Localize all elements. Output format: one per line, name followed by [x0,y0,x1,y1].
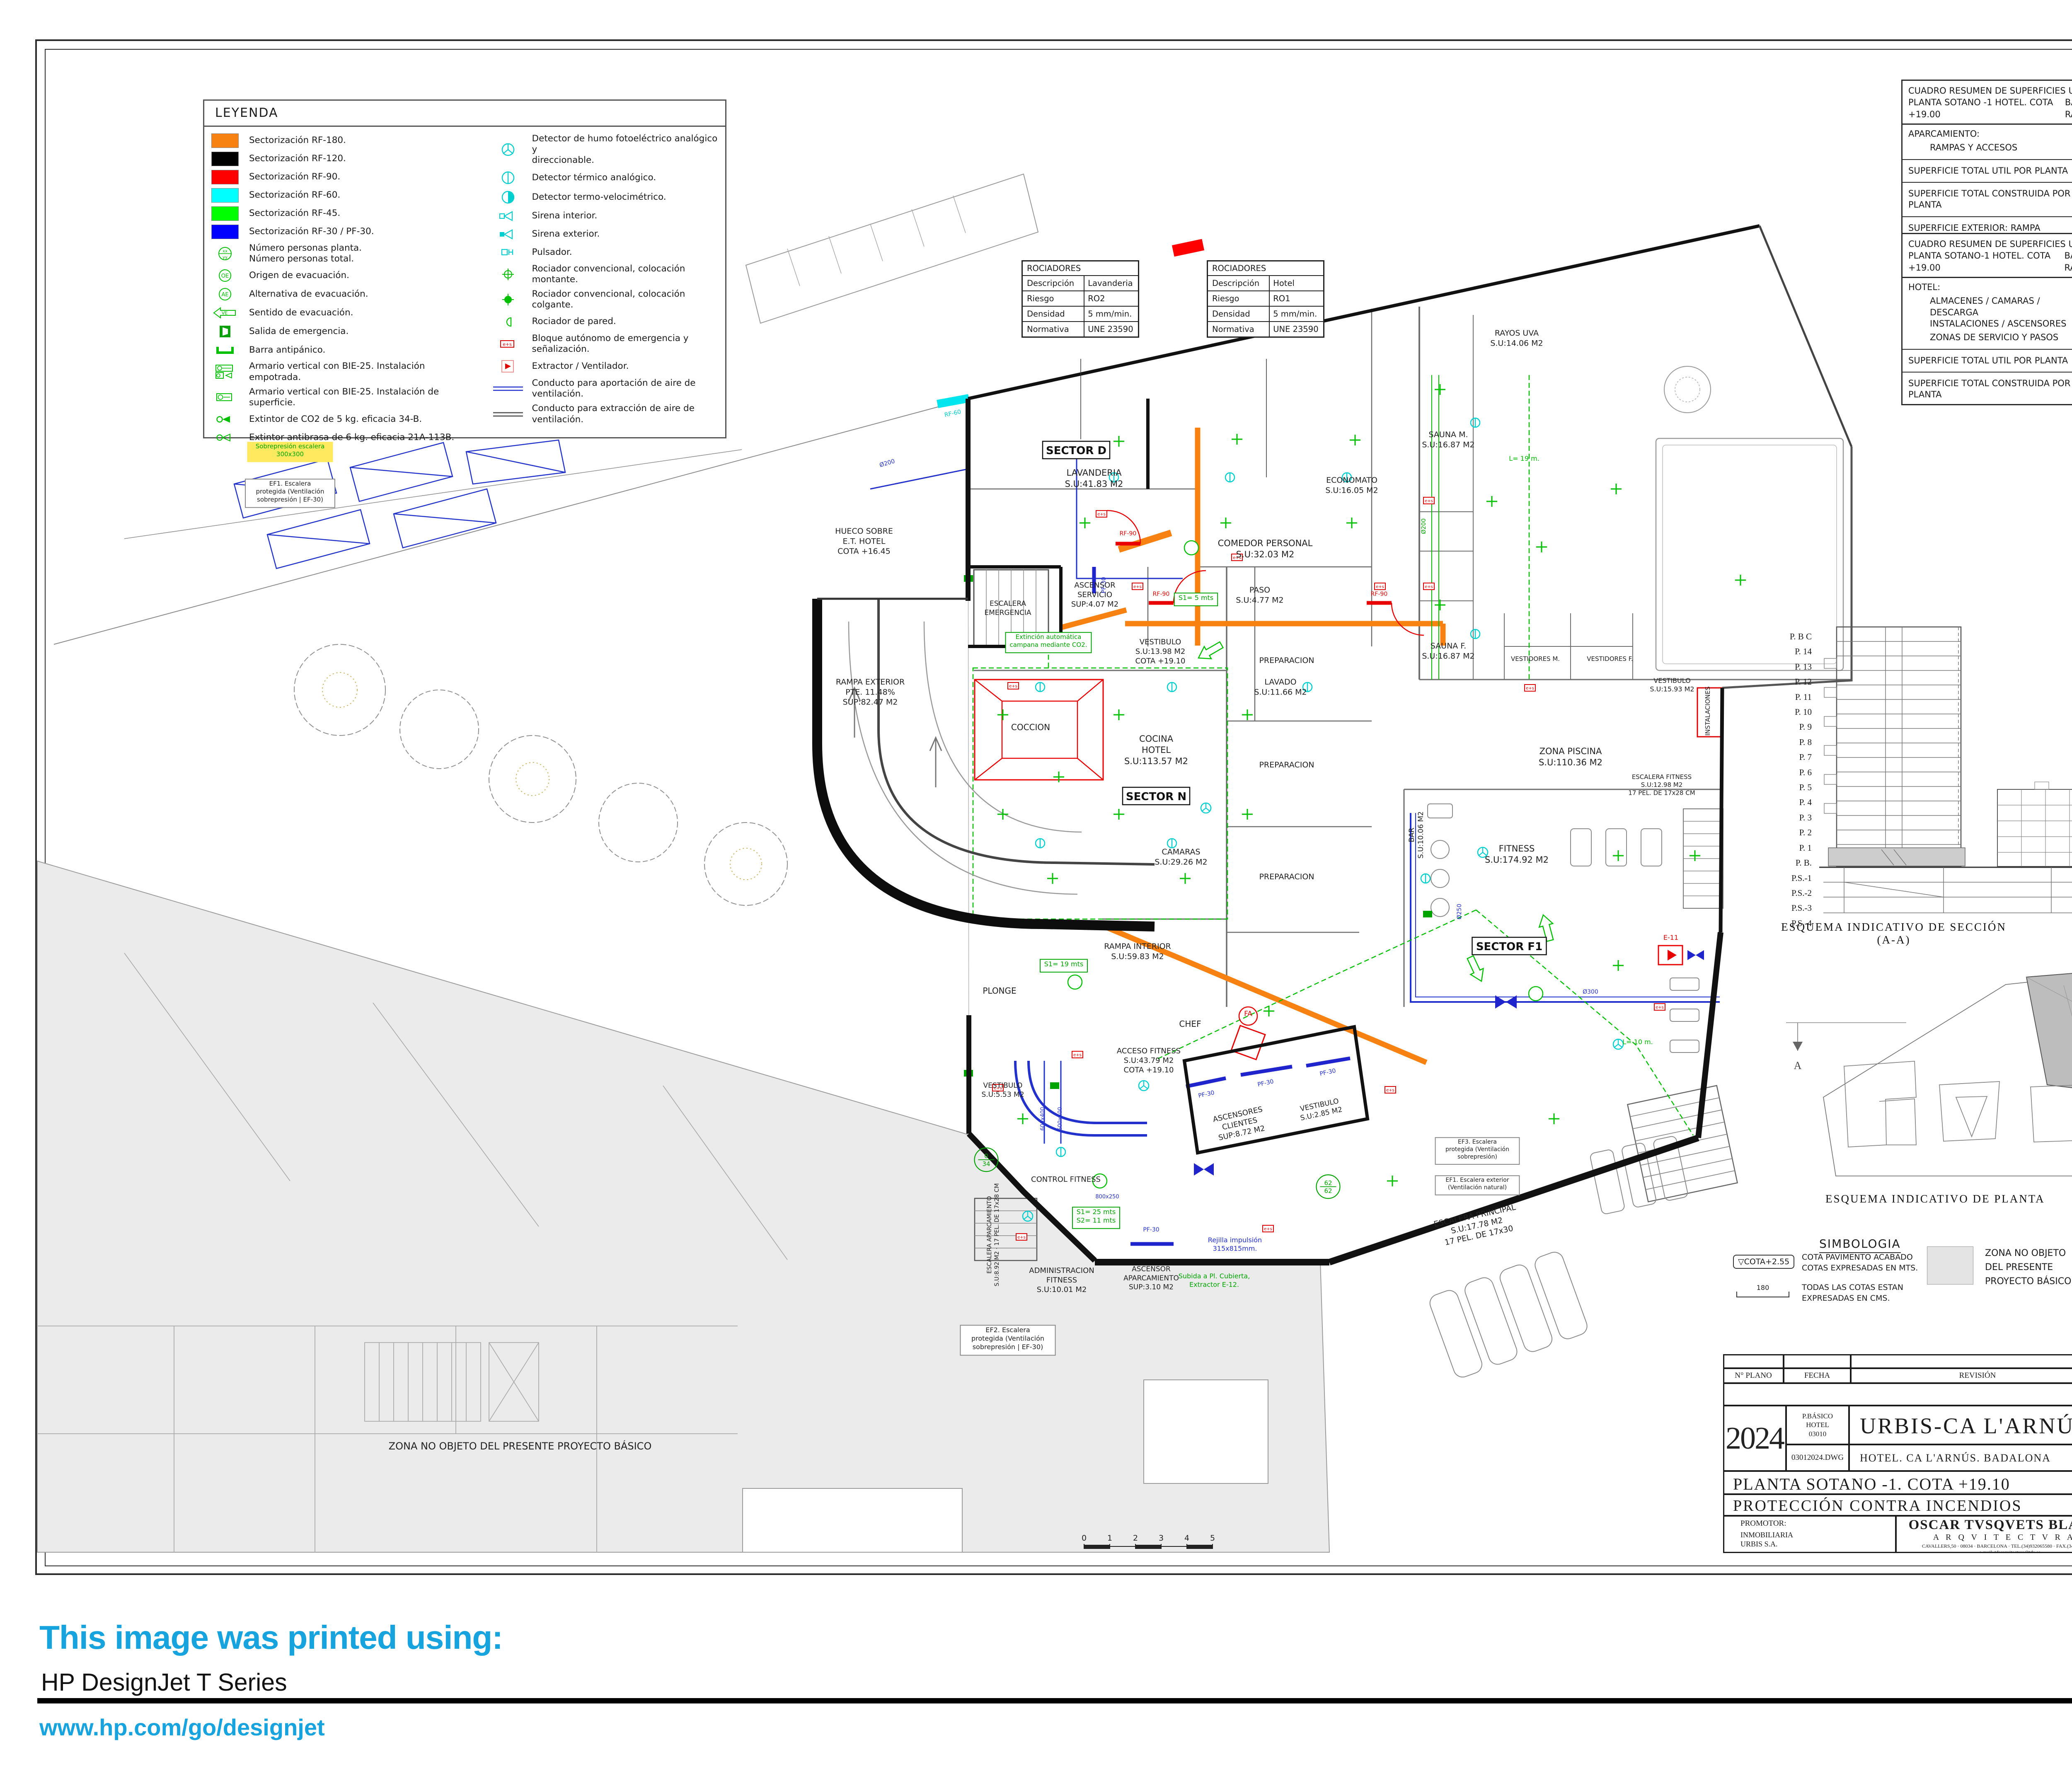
ve-icon: VE [208,305,242,320]
svg-text:SECTOR D: SECTOR D [1046,445,1106,457]
oe-icon: OE [208,268,242,283]
floor-label: P. 7 [1760,750,1812,765]
e+s-icon: e+s [491,337,525,351]
tb-year: 2024 [1723,1406,1786,1471]
sprinkler-table-row: DescripciónLavanderia [1023,276,1138,291]
legend-item: VESentido de evacuación. [208,305,491,320]
legend-swatch-#FF0000 [208,170,242,184]
plan-label: PREPARACION [1259,872,1314,881]
plan-label: RF-90 [1371,591,1388,598]
tb-empty-1 [1723,1354,1784,1368]
floor-label: P.S.-3 [1760,900,1812,915]
svg-text:e+s: e+s [503,341,512,347]
svg-text:VESTIBULOS.U:13.98 M2COTA +19.: VESTIBULOS.U:13.98 M2COTA +19.10 [1135,638,1186,665]
legend-swatch-#F78212 [208,133,242,148]
svg-text:SECTOR N: SECTOR N [1126,791,1186,803]
promotor-label: PROMOTOR: [1740,1519,1895,1528]
plan-label: Ø200 [879,458,896,469]
summary-group-heading: APARCAMIENTO: [1903,127,2072,141]
svg-text:e+s: e+s [1386,1088,1394,1093]
svg-text:S1= 19 mts: S1= 19 mts [1044,960,1083,968]
floor-label: P. B. [1760,855,1812,870]
svg-text:ZONA NO OBJETO DEL PRESENTE PR: ZONA NO OBJETO DEL PRESENTE PROYECTO BÁS… [389,1440,652,1452]
svg-text:0: 0 [1082,1534,1087,1543]
svg-text:e+s: e+s [1073,1053,1082,1057]
svg-text:S1= 25 mtsS2= 11 mts: S1= 25 mtsS2= 11 mts [1077,1208,1116,1224]
svg-text:CHEF: CHEF [1179,1019,1201,1029]
svg-text:FA: FA [1244,1010,1252,1018]
svg-text:e+s: e+s [1376,585,1384,589]
ae-icon: AE [208,287,242,302]
summary-row: ALMACENES / CAMARAS / DESCARGAINSTALACIO… [1903,294,2072,331]
cota-symbol-chip: ▽COTA+2.55 [1733,1255,1794,1269]
svg-text:PLONGE: PLONGE [983,986,1016,996]
legend-item-label: Salida de emergencia. [249,326,349,337]
legend-title: LEYENDA [204,101,725,127]
tb-project-subtitle: HOTEL. CA L'ARNÚS. BADALONA [1849,1444,2072,1471]
plan-label: E-11 [1663,934,1678,941]
plan-label: 600x400 [1040,1107,1046,1130]
legend-item-label: Rociador convencional, colocación montan… [532,264,722,285]
svg-text:5: 5 [1210,1534,1215,1543]
cond-extr-icon [491,409,525,419]
footer-url: www.hp.com/go/designjet [39,1714,325,1741]
cota-symbol-text: COTA PAVIMENTO ACABADO COTAS EXPRESADAS … [1802,1252,1918,1273]
dimension-symbol: 180 [1736,1284,1789,1297]
trees [294,644,787,905]
legend-item-label: Número personas planta. Número personas … [249,243,362,264]
plan-label: EF3. Escaleraprotegida (Ventilaciónsobre… [1435,1137,1520,1164]
svg-text:PF-30: PF-30 [1101,577,1107,593]
legend-swatch-#000000 [208,152,242,166]
zona-text: ZONA NO OBJETO DEL PRESENTE PROYECTO BÁS… [1985,1246,2071,1289]
sector-badge: SECTOR N [1123,787,1190,805]
legend-item: Pulsador. [491,245,722,260]
legend-item-label: Sirena interior. [532,210,598,221]
svg-text:yy: yy [223,255,228,260]
legend-item: AEAlternativa de evacuación. [208,287,491,302]
plan-label: EF1. Escaleraprotegida (Ventilaciónsobre… [245,479,335,508]
plan-label: 800x250 [1095,1194,1119,1200]
floor-label: P.S.-1 [1760,871,1812,886]
legend-item-label: Origen de evacuación. [249,270,349,281]
legend-item: Conducto para extracción de aire de vent… [491,403,722,425]
legend-item-label: Armario vertical con BIE-25. Instalación… [249,361,425,382]
legend-item-label: Detector térmico analógico. [532,172,656,183]
svg-text:VESTIDORES F.: VESTIDORES F. [1587,655,1633,663]
summary-table-hotel: CUADRO RESUMEN DE SUPERFICIES UTILESPLAN… [1901,233,2072,405]
thermal-icon [491,170,525,186]
thermo-icon [491,189,525,205]
tb-revision-row [1723,1383,2072,1406]
summary-total-row: SUPERFICIE TOTAL UTIL POR PLANTA59.83 M2 [1903,164,2072,178]
plan-label: PF-30 [1143,1227,1159,1233]
section-cut-marker: A [1794,1060,1802,1072]
legend-item: OEOrigen de evacuación. [208,268,491,283]
plan-label: PREPARACION [1259,656,1314,665]
section-floor-labels: P. B CP. 14P. 13P. 12P. 11P. 10P. 9P. 8P… [1760,629,1812,931]
svg-text:RF-90: RF-90 [1120,530,1137,537]
svg-text:ESCALERAEMERGENCIA: ESCALERAEMERGENCIA [984,600,1031,617]
svg-text:VESTIBULOS.U:5.53 M2: VESTIBULOS.U:5.53 M2 [981,1082,1024,1099]
floor-label: P. 13 [1760,659,1812,674]
footer-product-name: HP DesignJet T Series [41,1668,287,1696]
legend-item-label: Sirena exterior. [532,229,600,240]
summary-table-title: CUADRO RESUMEN DE SUPERFICIES UTILESPLAN… [1903,234,2072,278]
svg-text:EF1. Escalera exterior(Ventila: EF1. Escalera exterior(Ventilación natur… [1445,1177,1509,1191]
svg-text:PREPARACION: PREPARACION [1259,760,1314,769]
svg-text:RF-90: RF-90 [1371,591,1388,598]
svg-text:1: 1 [1107,1534,1112,1543]
ext-co2-icon [208,412,242,426]
floor-label: P. 9 [1760,719,1812,734]
legend-item-label: Armario vertical con BIE-25. Instalación… [249,387,439,408]
svg-text:ACCESO FITNESSS.U:43.79 M2COTA: ACCESO FITNESSS.U:43.79 M2COTA +19.10 [1117,1047,1181,1074]
plan-label: Ø200 [1421,518,1427,534]
svg-text:INSTALACIONES: INSTALACIONES [1704,686,1711,736]
tb-empty-3 [1851,1354,2072,1368]
summary-total-row: SUPERFICIE TOTAL CONSTRUIDA POR PLANTA33… [1903,377,2072,402]
tb-empty-2 [1784,1354,1851,1368]
simbologia-title: SIMBOLOGIA [1819,1237,1901,1253]
floor-label: P.S.-2 [1760,886,1812,900]
extractor-icon [491,358,525,374]
svg-text:SECTOR F1: SECTOR F1 [1476,941,1542,953]
footer-headline: This image was printed using: [39,1619,503,1657]
tb-header-plano: N° PLANO [1723,1368,1784,1383]
svg-text:600x400: 600x400 [1040,1107,1046,1130]
svg-text:e+s: e+s [1133,585,1142,589]
sprinkler-table-row: RiesgoRO2 [1023,291,1138,307]
svg-text:ESCALERA APARCAMIENTOS.U:8.92: ESCALERA APARCAMIENTOS.U:8.92 M2 · 17 PE… [986,1183,1000,1287]
legend-item-label: Detector termo-velocimétrico. [532,192,666,203]
legend-item-label: Rociador convencional, colocación colgan… [532,289,722,310]
sprinkler-table-row: DescripciónHotel [1208,276,1323,291]
floor-label: P. 8 [1760,735,1812,750]
floor-label: P. 6 [1760,765,1812,780]
dimension-bar [1736,1292,1789,1297]
svg-text:Ø200: Ø200 [1421,518,1427,534]
summary-table-title: CUADRO RESUMEN DE SUPERFICIES UTILESPLAN… [1903,81,2072,125]
floor-label: P. 1 [1760,840,1812,855]
zona-gray-swatch [1927,1246,1973,1285]
footer-divider [37,1698,2072,1703]
legend-item: Rociador convencional, colocación colgan… [491,289,722,310]
summary-total-row: SUPERFICIE TOTAL CONSTRUIDA POR PLANTA97… [1903,187,2072,212]
svg-text:e+s: e+s [1656,1005,1664,1010]
plan-label: ACCESO FITNESSS.U:43.79 M2COTA +19.10 [1117,1047,1181,1074]
sprinkler-table-row: Densidad5 mm/min. [1208,307,1323,322]
legend-item: Sectorización RF-60. [208,188,491,203]
smoke-icon [491,142,525,157]
svg-text:e+s: e+s [1017,1235,1026,1240]
bie-emp-icon [208,364,242,380]
legend-item-label: Barra antipánico. [249,345,325,356]
floor-label: P. 12 [1760,674,1812,689]
svg-text:OE: OE [221,273,229,279]
legend-item-label: Conducto para aportación de aire de vent… [532,378,696,399]
legend-item: Detector térmico analógico. [491,170,722,186]
plan-label: INSTALACIONES [1704,686,1711,736]
legend-item: Armario vertical con BIE-25. Instalación… [208,387,491,408]
svg-text:e+s: e+s [1009,684,1017,689]
plan-label: ESCALERA APARCAMIENTOS.U:8.92 M2 · 17 PE… [986,1183,1000,1287]
pulsador-icon [491,245,525,259]
svg-text:600x400: 600x400 [1057,1107,1063,1130]
plan-label: VESTIBULOS.U:13.98 M2COTA +19.10 [1135,638,1186,665]
svg-text:xx: xx [223,249,228,254]
plan-label: COCCION [1011,722,1050,732]
sprinkler-table-hotel: ROCIADORESDescripciónHotelRiesgoRO1Densi… [1207,260,1324,338]
persons-icon: xxyy [208,246,242,261]
svg-text:4: 4 [1184,1534,1189,1543]
plan-label: ASCENSORSERVICIOSUP:4.07 M2 [1071,581,1118,609]
legend-item: Sectorización RF-180. [208,133,491,148]
legend-item-label: Sectorización RF-60. [249,190,340,201]
plan-label: HUECO SOBREE.T. HOTELCOTA +16.45 [835,527,893,556]
legend-item: Salida de emergencia. [208,324,491,339]
tb-studio: OSCAR TVSQVETS BLANCA A R Q V I T E C T … [1896,1516,2072,1553]
plan-label: S1= 19 mts [1040,959,1087,972]
svg-text:Rejilla impulsión315x815mm.: Rejilla impulsión315x815mm. [1208,1236,1262,1252]
plan-label: VESTIBULOS.U:15.93 M2 [1650,677,1694,693]
plan-label: FA [1244,1010,1252,1018]
plan-label: RF-60 [944,409,962,419]
svg-text:RF-90: RF-90 [1153,591,1170,598]
legend-item-label: Bloque autónomo de emergencia y señaliza… [532,333,722,355]
roc-pared-icon [491,315,525,329]
svg-text:VE: VE [222,310,228,316]
plan-label: L= 10 m. [1622,1038,1653,1046]
tb-drawing-name: PROTECCIÓN CONTRA INCENDIOS [1723,1494,2072,1516]
plan-label: VESTIBULOS.U:5.53 M2 [981,1082,1024,1099]
plan-label: PLONGE [983,986,1016,996]
plan-label: RF-90 [1153,591,1170,598]
plan-schema-caption: ESQUEMA INDICATIVO DE PLANTA [1825,1193,2045,1205]
plan-label: VESTIDORES F. [1587,655,1633,663]
floor-label: P. 2 [1760,825,1812,840]
legend-item: Armario vertical con BIE-25. Instalación… [208,361,491,382]
plan-label: EF2. Escaleraprotegida (Ventilaciónsobre… [960,1325,1055,1355]
section-schema-caption: ESQUEMA INDICATIVO DE SECCIÓN (A-A) [1778,921,2010,946]
svg-text:PREPARACION: PREPARACION [1259,872,1314,881]
plan-label: ESCALERAEMERGENCIA [984,600,1031,617]
plan-label: S1= 25 mtsS2= 11 mts [1072,1207,1120,1229]
legend-item: Sectorización RF-90. [208,170,491,184]
floor-label: P. 11 [1760,690,1812,704]
svg-text:e+s: e+s [1425,499,1433,503]
legend-item: xxyyNúmero personas planta. Número perso… [208,243,491,264]
tb-project-title: URBIS-CA L'ARNÚS [1849,1406,2072,1444]
svg-text:Extinción automáticacampana me: Extinción automáticacampana mediante CO2… [1010,633,1087,648]
plan-label: ZONA NO OBJETO DEL PRESENTE PROYECTO BÁS… [389,1440,652,1452]
svg-text:COCCION: COCCION [1011,722,1050,732]
legend-item: Rociador de pared. [491,315,722,329]
svg-text:RAMPA EXTERIORPTE. 11.48%SUP:8: RAMPA EXTERIORPTE. 11.48%SUP:82.47 M2 [836,677,905,707]
floor-label: P. 14 [1760,644,1812,659]
studio-address: CAVALLERS,50 · 08034 · BARCELONA · TEL.(… [1897,1543,2072,1549]
svg-text:e+s: e+s [1097,512,1106,517]
bie-sup-icon [208,390,242,404]
svg-text:6262: 6262 [1324,1179,1332,1195]
svg-text:HUECO SOBREE.T. HOTELCOTA +16.: HUECO SOBREE.T. HOTELCOTA +16.45 [835,527,893,556]
svg-text:e+s: e+s [1425,585,1433,589]
sprinkler-table-row: RiesgoRO1 [1208,291,1323,307]
legend-item-label: Sentido de evacuación. [249,307,353,318]
legend-item: Sirena interior. [491,209,722,223]
plan-schema-drawing: A [1774,961,2072,1186]
legend-item: Sectorización RF-45. [208,206,491,221]
svg-text:L= 10 m.: L= 10 m. [1622,1038,1653,1046]
plan-label: CONTROL FITNESS [1031,1175,1101,1184]
siren-int-icon [491,209,525,223]
legend-item: Conducto para aportación de aire de vent… [491,378,722,399]
svg-text:CONTROL FITNESS: CONTROL FITNESS [1031,1175,1101,1184]
plan-label: CHEF [1179,1019,1201,1029]
legend-item-label: Extractor / Ventilador. [532,361,629,372]
legend-item-label: Detector de humo fotoeléctrico analógico… [532,133,722,166]
dimension-value: 180 [1736,1284,1789,1292]
svg-text:ASCENSORAPARCAMIENTOSUP:3.10 M: ASCENSORAPARCAMIENTOSUP:3.10 M2 [1123,1265,1179,1292]
plan-label: Sobrepresión escalera300x300 [247,442,333,462]
plan-label: RF-90 [1120,530,1137,537]
legend-item-label: Conducto para extracción de aire de vent… [532,403,695,425]
svg-text:AE: AE [221,292,228,298]
studio-email: · e-mail: tdaarquitectura@tda.es · [1897,1549,2072,1553]
legend-item: Detector termo-velocimétrico. [491,189,722,205]
legend-item-label: Sectorización RF-90. [249,172,340,182]
dimension-text: TODAS LAS COTAS ESTAN EXPRESADAS EN CMS. [1802,1282,1903,1304]
summary-total-row: SUPERFICIE TOTAL UTIL POR PLANTA269.40 M… [1903,354,2072,368]
ext-6kg-icon [208,431,242,445]
building-footprint [968,226,1852,1262]
legend-item-label: Extintor de CO2 de 5 kg. eficacia 34-B. [249,414,422,425]
plan-label: ASCENSORAPARCAMIENTOSUP:3.10 M2 [1123,1265,1179,1292]
svg-text:800x250: 800x250 [1095,1194,1119,1200]
bar-icon [208,344,242,357]
plan-label: PF-30 [1101,577,1107,593]
sprinkler-table-row: NormativaUNE 23590 [1208,322,1323,336]
promotor-value: INMOBILIARIA URBIS S.A. [1740,1531,1895,1548]
legend-swatch-#0000FF [208,225,242,239]
cond-aport-icon [491,384,525,394]
legend-item-label: Pulsador. [532,247,572,258]
legend-item-label: Sectorización RF-30 / PF-30. [249,226,374,237]
roc-mont-icon [491,267,525,282]
sprinkler-table-title: ROCIADORES [1023,261,1138,276]
legend-item: Barra antipánico. [208,343,491,357]
sprinkler-table-row: NormativaUNE 23590 [1023,322,1138,336]
svg-text:VESTIDORES M.: VESTIDORES M. [1511,655,1560,663]
legend-item: Sirena exterior. [491,227,722,242]
svg-text:PF-30: PF-30 [1143,1227,1159,1233]
exit-icon [208,324,242,339]
svg-text:2: 2 [1133,1534,1138,1543]
svg-text:PREPARACION: PREPARACION [1259,656,1314,665]
sprinkler-table-row: Densidad5 mm/min. [1023,307,1138,322]
plan-label: RAMPA EXTERIORPTE. 11.48%SUP:82.47 M2 [836,677,905,707]
tb-project-code: P.BÁSICO HOTEL 03010 [1786,1406,1849,1444]
legend-item: Detector de humo fotoeléctrico analógico… [491,133,722,166]
floor-label: P. 5 [1760,780,1812,795]
tb-file-name: 03012024.DWG [1786,1444,1849,1471]
tb-sheet-title: PLANTA SOTANO -1. COTA +19.10 [1723,1471,2072,1494]
legend-swatch-#00FFFF [208,188,242,203]
studio-subtitle: A R Q V I T E C T V R A S [1897,1533,2072,1542]
tb-header-revision: REVISIÓN [1851,1368,2072,1383]
tb-header-fecha: FECHA [1784,1368,1851,1383]
floor-label: P. 10 [1760,704,1812,719]
plan-label: L= 19 m. [1509,455,1539,462]
plan-label: Ø300 [1583,989,1598,995]
svg-text:L= 19 m.: L= 19 m. [1509,455,1539,462]
summary-group-heading: HOTEL: [1903,281,2072,294]
sprinkler-table-title: ROCIADORES [1208,261,1323,276]
legend-item: Extintor de CO2 de 5 kg. eficacia 34-B. [208,412,491,426]
sector-badge: SECTOR D [1043,441,1110,459]
svg-text:e+s: e+s [1526,686,1534,691]
legend-item-label: Extintor antibrasa de 6 kg. eficacia 21A… [249,432,454,443]
legend-item-label: Sectorización RF-45. [249,208,340,219]
sprinkler-table-laundry: ROCIADORESDescripciónLavanderiaRiesgoRO2… [1021,260,1139,338]
studio-name: OSCAR TVSQVETS BLANCA [1897,1517,2072,1533]
legend-item: Sectorización RF-120. [208,152,491,166]
plan-label: PREPARACION [1259,760,1314,769]
legend-item-label: Alternativa de evacuación. [249,289,368,300]
section-schema-drawing [1819,624,2072,916]
tb-promotor: PROMOTOR: INMOBILIARIA URBIS S.A. [1723,1516,1896,1553]
svg-text:Ø300: Ø300 [1583,989,1598,995]
svg-text:Ø200: Ø200 [879,458,896,469]
svg-text:ASCENSORSERVICIOSUP:4.07 M2: ASCENSORSERVICIOSUP:4.07 M2 [1071,581,1118,609]
plan-label: S1= 5 mts [1174,593,1218,606]
floor-label: P. B C [1760,629,1812,644]
legend-item-label: Rociador de pared. [532,316,616,327]
plan-label: Ø250 [1456,904,1463,919]
roc-colg-icon [491,292,525,307]
legend-item: Extractor / Ventilador. [491,358,722,374]
plan-label: Extinción automáticacampana mediante CO2… [1006,632,1092,653]
legend-item: Sectorización RF-30 / PF-30. [208,225,491,239]
plan-label: 600x400 [1057,1107,1063,1130]
legend-panel: LEYENDA Sectorización RF-180.Sectorizaci… [203,99,726,438]
summary-row: RAMPAS Y ACCESOS59.83 M2 [1903,141,2072,155]
floor-label: P. 4 [1760,795,1812,810]
plan-label: VESTIDORES M. [1511,655,1560,663]
siren-ext-icon [491,227,525,241]
legend-column-left: Sectorización RF-180.Sectorización RF-12… [208,133,491,445]
legend-column-right: Detector de humo fotoeléctrico analógico… [491,133,722,445]
floor-label: P. 3 [1760,810,1812,825]
svg-text:e+s: e+s [1264,1227,1272,1232]
legend-item: e+sBloque autónomo de emergencia y señal… [491,333,722,355]
sector-badge: SECTOR F1 [1472,937,1547,955]
legend-item-label: Sectorización RF-180. [249,135,346,146]
legend-item: Extintor antibrasa de 6 kg. eficacia 21A… [208,430,491,445]
summary-row: ZONAS DE SERVICIO Y PASOS233.09 M2 [1903,331,2072,344]
svg-text:Ø250: Ø250 [1456,904,1463,919]
svg-text:E-11: E-11 [1663,934,1678,941]
legend-swatch-#00FF00 [208,206,242,221]
svg-text:S1= 5 mts: S1= 5 mts [1179,594,1213,602]
svg-text:VESTIBULOS.U:15.93 M2: VESTIBULOS.U:15.93 M2 [1650,677,1694,693]
plan-label: EF1. Escalera exterior(Ventilación natur… [1435,1176,1520,1195]
plan-label: Rejilla impulsión315x815mm. [1208,1236,1262,1252]
svg-text:RF-60: RF-60 [944,409,962,419]
legend-item: Rociador convencional, colocación montan… [491,264,722,285]
svg-text:3: 3 [1159,1534,1164,1543]
legend-item-label: Sectorización RF-120. [249,153,346,164]
